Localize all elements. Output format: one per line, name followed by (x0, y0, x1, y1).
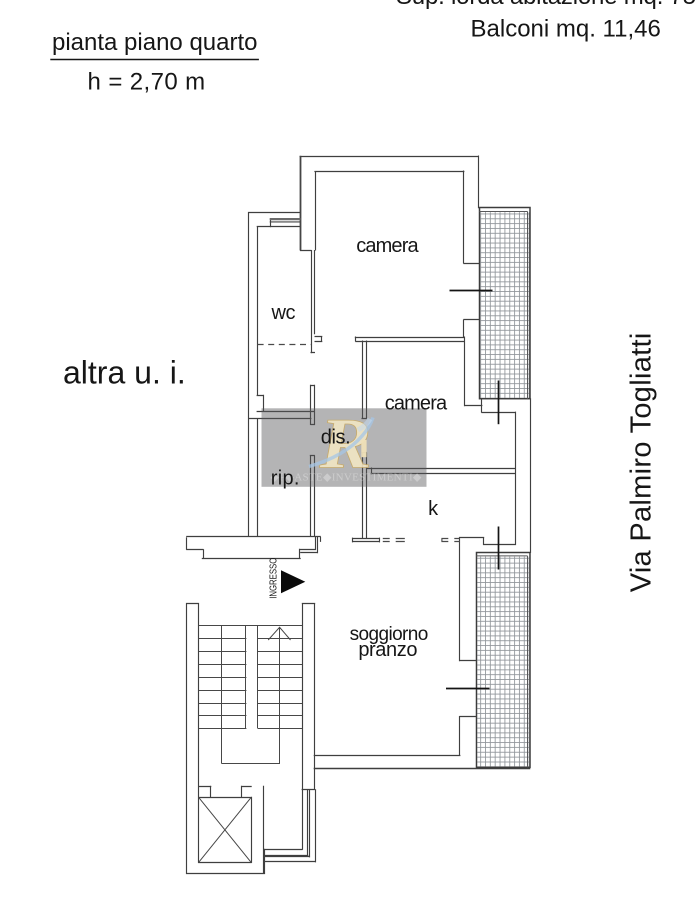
svg-text:dis.: dis. (321, 427, 351, 449)
svg-text:k: k (428, 498, 439, 520)
svg-text:Via Palmiro Togliatti: Via Palmiro Togliatti (626, 332, 658, 592)
svg-text:Balconi mq. 11,46: Balconi mq. 11,46 (471, 16, 661, 43)
svg-text:camera: camera (385, 393, 448, 415)
svg-text:pianta piano quarto: pianta piano quarto (52, 29, 258, 56)
svg-text:altra u. i.: altra u. i. (63, 355, 186, 391)
svg-text:camera: camera (356, 235, 419, 257)
svg-text:INGRESSO: INGRESSO (267, 558, 278, 599)
svg-text:pranzo: pranzo (358, 639, 417, 661)
svg-text:h = 2,70 m: h = 2,70 m (88, 69, 206, 96)
svg-text:rip.: rip. (271, 467, 300, 489)
svg-text:Sup. lorda abitazione mq. 75: Sup. lorda abitazione mq. 75 (396, 0, 696, 10)
svg-text:wc: wc (270, 302, 295, 324)
